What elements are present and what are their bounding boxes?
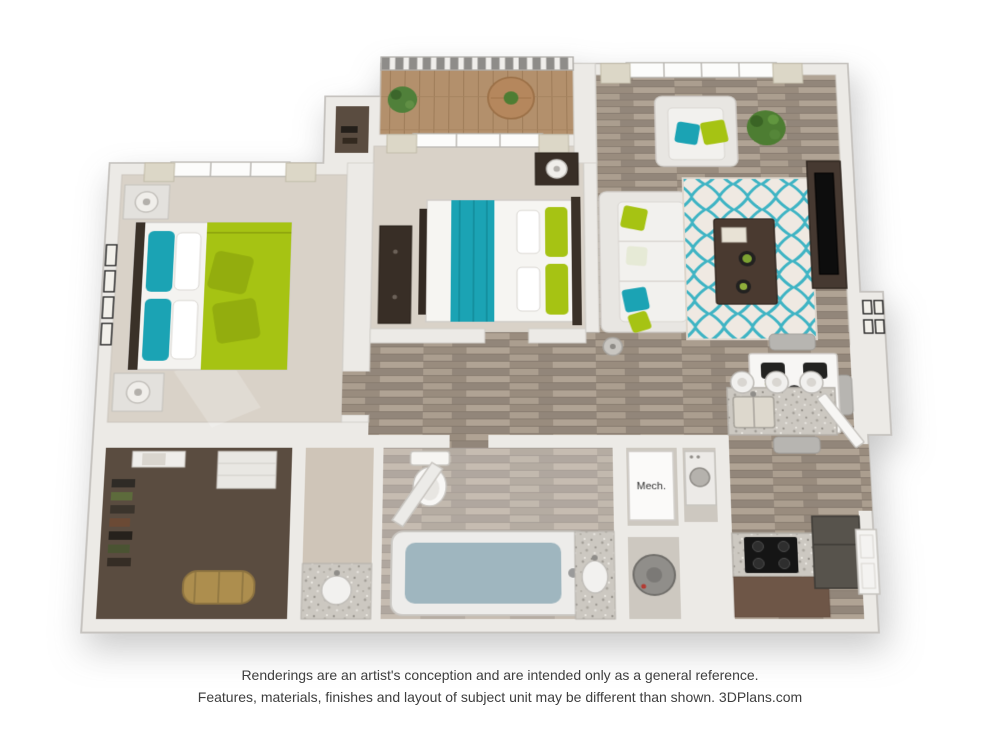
- bathroom-doorway: [450, 435, 489, 448]
- stove-cooktop: [744, 537, 799, 573]
- headboard-bedroom2: [571, 197, 582, 325]
- bathroom-vanity-right: [575, 531, 616, 619]
- accent-pillow-pale: [626, 246, 648, 267]
- disclaimer: Renderings are an artist's conception an…: [0, 664, 1000, 708]
- closet-shelving: [217, 451, 277, 488]
- runner-fold: [459, 200, 460, 321]
- balcony-railing: [381, 57, 573, 70]
- pillow-teal-master: [142, 299, 172, 361]
- curtain: [286, 163, 316, 182]
- disclaimer-line1: Renderings are an artist's conception an…: [0, 664, 1000, 686]
- floor-plan-rendering: Mech.: [0, 0, 1000, 750]
- kitchen-sink: [733, 391, 775, 427]
- bed-bedroom2: [418, 197, 582, 325]
- table-lamp-top: [553, 166, 560, 172]
- pillow-lime-bedroom2: [545, 264, 568, 315]
- pillow-white-master: [171, 301, 199, 359]
- pillow-white-master: [174, 233, 201, 290]
- comforter-lime: [201, 222, 292, 369]
- washer: [685, 451, 717, 505]
- pillow-lime-bedroom2: [545, 207, 568, 257]
- curtain: [144, 163, 175, 182]
- dining-chair: [773, 437, 820, 454]
- floor-plan-3d-view: Mech.: [60, 47, 940, 652]
- curtain: [387, 134, 417, 152]
- accent-pillow-teal: [674, 121, 700, 145]
- master-doorway: [342, 372, 370, 415]
- water-heater: [633, 555, 675, 595]
- accent-pillow-lime: [699, 119, 729, 145]
- dresser-bedroom2: [378, 226, 412, 324]
- sink-basin: [321, 576, 351, 605]
- accent-pillow-teal: [621, 286, 650, 312]
- sofa: [599, 192, 691, 334]
- bathtub: [391, 531, 590, 615]
- master-vanity: [301, 564, 372, 620]
- sink-basin: [582, 561, 608, 593]
- pillow-teal-master: [145, 231, 175, 292]
- accent-pillow-lime: [212, 297, 261, 344]
- bathtub-water: [405, 543, 562, 604]
- patio-table-plant: [504, 91, 519, 104]
- curtain: [773, 64, 803, 84]
- nightstand-master-bottom: [112, 373, 164, 411]
- accent-pillow-lime: [620, 205, 649, 231]
- pillow-white-bedroom2: [517, 210, 540, 253]
- closet-bench: [182, 571, 255, 604]
- coffee-table: [714, 219, 778, 304]
- closet-door: [856, 529, 880, 594]
- curtain: [601, 64, 631, 84]
- bed-master: [128, 222, 292, 369]
- pillow-white-bedroom2: [517, 267, 540, 311]
- curtain: [539, 134, 569, 152]
- floor-lamp: [603, 338, 622, 356]
- mech-closet: Mech.: [628, 451, 674, 520]
- tv-console: [807, 161, 847, 288]
- mech-label: Mech.: [637, 481, 666, 492]
- disclaimer-line2: Features, materials, finishes and layout…: [0, 686, 1000, 708]
- closet-box: [142, 453, 166, 465]
- refrigerator: [812, 516, 863, 588]
- floor-plan-svg: Mech.: [60, 47, 940, 652]
- coffee-table-books: [722, 228, 747, 243]
- armchair: [655, 96, 739, 166]
- nightstand-bedroom2: [535, 153, 578, 185]
- nightstand-master-top: [123, 185, 170, 219]
- foot-bench-bedroom2: [418, 209, 427, 315]
- dining-chair: [769, 334, 816, 350]
